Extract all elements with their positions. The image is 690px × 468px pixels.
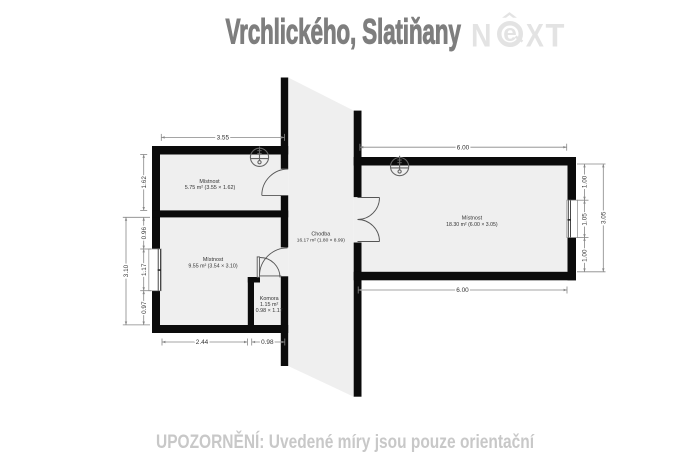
svg-text:1.05: 1.05: [582, 213, 589, 226]
svg-text:Místnost: Místnost: [199, 179, 220, 185]
svg-text:Místnost: Místnost: [462, 216, 483, 222]
svg-text:18.30 m² (6.00 × 3.05): 18.30 m² (6.00 × 3.05): [446, 222, 498, 228]
svg-text:0.97: 0.97: [141, 301, 148, 314]
svg-text:UPOZORNĚNÍ: Uvedené míry jsou: UPOZORNĚNÍ: Uvedené míry jsou pouze orie…: [156, 429, 534, 453]
svg-text:X: X: [526, 18, 545, 54]
svg-text:0.96: 0.96: [141, 227, 148, 240]
svg-text:6.00: 6.00: [456, 287, 469, 294]
svg-text:6.00: 6.00: [457, 144, 470, 151]
svg-text:N: N: [471, 18, 492, 54]
svg-text:e: e: [503, 20, 517, 47]
svg-text:T: T: [546, 18, 565, 54]
svg-text:0.98: 0.98: [261, 339, 274, 346]
svg-text:Místnost: Místnost: [203, 257, 224, 263]
svg-text:Chodba: Chodba: [311, 231, 330, 237]
svg-text:9.55 m² (3.54 × 3.10): 9.55 m² (3.54 × 3.10): [188, 263, 237, 269]
svg-text:1.62: 1.62: [141, 176, 148, 189]
svg-text:2.44: 2.44: [196, 339, 209, 346]
svg-text:5.75 m² (3.55 × 1.62): 5.75 m² (3.55 × 1.62): [185, 185, 236, 191]
svg-text:3.10: 3.10: [123, 264, 130, 277]
svg-text:1.00: 1.00: [582, 249, 589, 262]
svg-text:1.00: 1.00: [582, 175, 589, 188]
svg-text:Vrchlického, Slatiňany: Vrchlického, Slatiňany: [225, 13, 461, 52]
svg-text:1.17: 1.17: [141, 263, 148, 276]
svg-text:0.98 × 1.17: 0.98 × 1.17: [256, 308, 283, 314]
svg-text:3.55: 3.55: [217, 135, 230, 142]
svg-text:3.05: 3.05: [600, 211, 607, 224]
svg-text:16.17 m² (1.80 × 8.99): 16.17 m² (1.80 × 8.99): [297, 238, 345, 244]
